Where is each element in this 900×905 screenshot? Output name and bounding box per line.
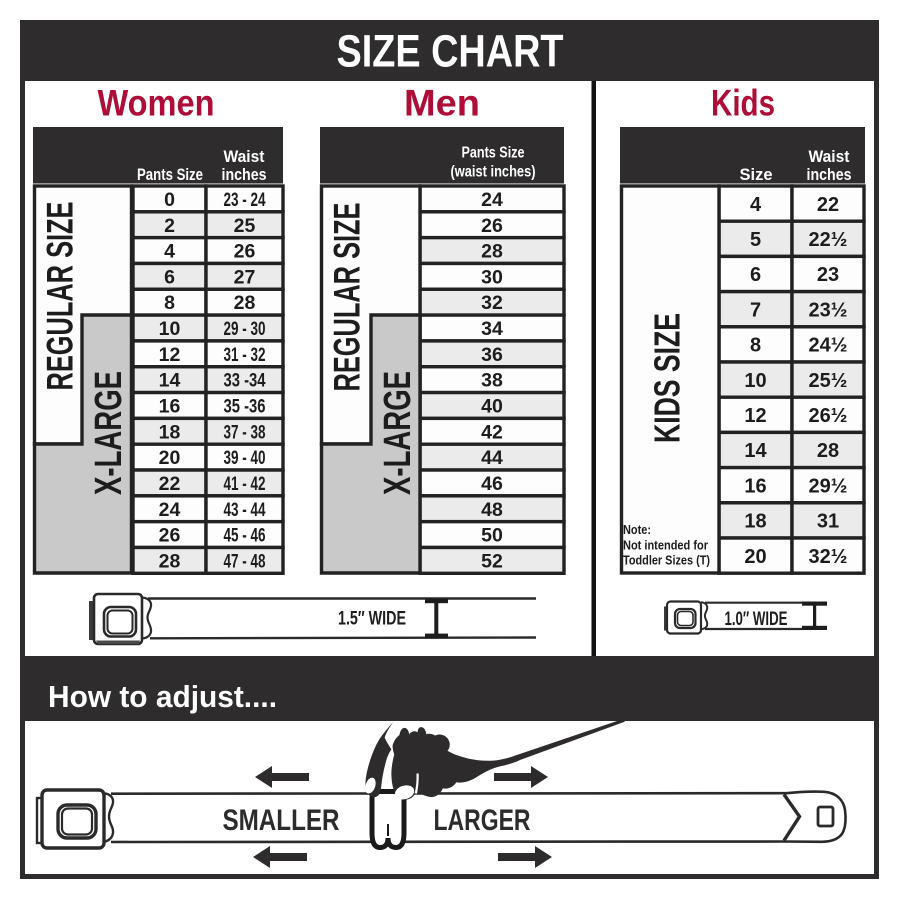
svg-text:25½: 25½ [809, 370, 848, 392]
svg-text:39 - 40: 39 - 40 [224, 447, 266, 469]
svg-text:6: 6 [164, 266, 175, 288]
svg-text:28: 28 [817, 440, 839, 462]
svg-text:Pants Size: Pants Size [462, 145, 525, 162]
svg-text:0: 0 [164, 189, 175, 211]
svg-text:REGULAR SIZE: REGULAR SIZE [327, 203, 368, 392]
svg-text:35 -36: 35 -36 [224, 395, 266, 417]
svg-text:30: 30 [481, 266, 503, 288]
svg-text:12: 12 [159, 344, 181, 366]
svg-text:12: 12 [744, 405, 766, 427]
svg-text:10: 10 [744, 370, 766, 392]
svg-text:38: 38 [481, 370, 503, 392]
svg-text:Pants Size: Pants Size [137, 165, 203, 184]
svg-text:20: 20 [744, 546, 766, 568]
svg-text:6: 6 [750, 264, 761, 286]
svg-text:10: 10 [159, 318, 181, 340]
svg-text:32½: 32½ [809, 546, 848, 568]
svg-text:inches: inches [807, 166, 852, 184]
svg-text:29½: 29½ [809, 475, 848, 497]
svg-text:40: 40 [481, 395, 503, 417]
svg-text:16: 16 [744, 475, 766, 497]
svg-text:48: 48 [481, 499, 503, 521]
svg-text:29 - 30: 29 - 30 [224, 318, 266, 340]
svg-text:34: 34 [481, 318, 503, 340]
svg-text:26: 26 [159, 525, 181, 547]
svg-text:31 - 32: 31 - 32 [224, 344, 266, 366]
svg-text:4: 4 [750, 194, 762, 216]
svg-text:20: 20 [159, 447, 181, 469]
svg-text:24: 24 [481, 189, 503, 211]
svg-text:Waist: Waist [224, 148, 265, 166]
svg-text:36: 36 [481, 344, 503, 366]
svg-text:Women: Women [98, 83, 215, 124]
svg-text:28: 28 [159, 550, 181, 572]
svg-text:44: 44 [481, 447, 503, 469]
svg-text:43 - 44: 43 - 44 [224, 499, 266, 521]
svg-text:2: 2 [164, 215, 175, 237]
svg-text:5: 5 [750, 229, 761, 251]
svg-text:24½: 24½ [809, 335, 848, 357]
svg-text:32: 32 [481, 292, 503, 314]
svg-text:23 - 24: 23 - 24 [224, 189, 266, 211]
svg-text:7: 7 [750, 299, 761, 321]
svg-text:23½: 23½ [809, 299, 848, 321]
svg-text:inches: inches [222, 166, 267, 184]
svg-text:14: 14 [159, 370, 181, 392]
svg-text:28: 28 [234, 292, 256, 314]
svg-text:LARGER: LARGER [434, 804, 531, 837]
svg-text:14: 14 [744, 440, 767, 462]
svg-text:37 - 38: 37 - 38 [224, 421, 266, 443]
svg-text:Kids: Kids [711, 83, 775, 124]
svg-text:24: 24 [159, 499, 181, 521]
svg-text:45 - 46: 45 - 46 [224, 525, 266, 547]
svg-text:Waist: Waist [809, 148, 850, 166]
svg-text:Men: Men [404, 83, 480, 124]
svg-text:33 -34: 33 -34 [224, 370, 266, 392]
svg-text:REGULAR SIZE: REGULAR SIZE [40, 202, 81, 391]
svg-text:18: 18 [744, 511, 766, 533]
svg-text:1.5″ WIDE: 1.5″ WIDE [338, 609, 406, 630]
svg-text:8: 8 [750, 335, 761, 357]
svg-text:52: 52 [481, 550, 503, 572]
svg-text:Not intended for: Not intended for [623, 538, 708, 553]
svg-text:16: 16 [159, 395, 181, 417]
svg-text:50: 50 [481, 525, 503, 547]
svg-text:25: 25 [234, 215, 256, 237]
svg-text:22: 22 [159, 473, 181, 495]
svg-text:18: 18 [159, 421, 181, 443]
svg-text:23: 23 [817, 264, 839, 286]
svg-text:X-LARGE: X-LARGE [377, 371, 419, 495]
svg-text:Note:: Note: [623, 522, 651, 537]
svg-text:26: 26 [234, 241, 256, 263]
svg-text:22½: 22½ [809, 229, 848, 251]
svg-text:47 - 48: 47 - 48 [224, 550, 266, 572]
svg-text:KIDS SIZE: KIDS SIZE [647, 313, 688, 443]
svg-text:8: 8 [164, 292, 175, 314]
svg-text:(waist inches): (waist inches) [451, 164, 536, 181]
svg-text:Size: Size [740, 165, 773, 184]
svg-text:42: 42 [481, 421, 503, 443]
svg-text:28: 28 [481, 241, 503, 263]
svg-text:SMALLER: SMALLER [223, 804, 340, 837]
svg-text:1.0″ WIDE: 1.0″ WIDE [725, 609, 788, 630]
svg-text:4: 4 [164, 241, 175, 263]
svg-text:Toddler Sizes (T): Toddler Sizes (T) [623, 553, 710, 568]
svg-text:26: 26 [481, 215, 503, 237]
svg-text:46: 46 [481, 473, 503, 495]
svg-text:22: 22 [817, 194, 839, 216]
svg-text:26½: 26½ [809, 405, 848, 427]
svg-text:27: 27 [234, 266, 256, 288]
svg-text:31: 31 [817, 511, 839, 533]
svg-text:How to adjust....: How to adjust.... [48, 679, 277, 714]
svg-text:X-LARGE: X-LARGE [88, 371, 130, 495]
svg-text:SIZE CHART: SIZE CHART [337, 26, 564, 77]
svg-text:41 - 42: 41 - 42 [224, 473, 266, 495]
